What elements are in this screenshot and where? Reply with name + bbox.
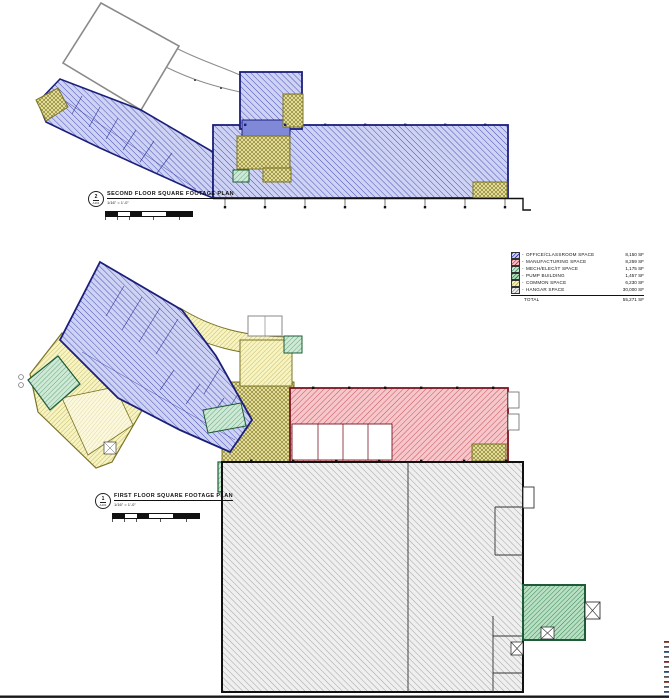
clipped-right-content: [664, 641, 669, 693]
legend-row: -COMMON SPACE6,230 SF: [511, 280, 644, 287]
area-legend: -OFFICE/CLASSROOM SPACE8,150 SF-MANUFACT…: [511, 252, 644, 304]
west-wing-door: [104, 442, 116, 454]
legend-label: PUMP BUILDING: [526, 274, 616, 279]
west-edge-symbols: [19, 375, 24, 388]
scale-bar-ticks: [112, 519, 198, 522]
curved-canopy-line: [178, 49, 240, 75]
column-ticks-bottom: [224, 198, 506, 208]
second-floor-detail-bubble: 2 A101: [88, 191, 104, 207]
sheet-reference: A101: [92, 201, 99, 205]
first-floor-detail-bubble: 1 A101: [95, 493, 111, 509]
legend-row: -MANUFACTURING SPACE8,259 SF: [511, 259, 644, 266]
legend-value: 30,000 SF: [616, 288, 644, 293]
hangar-area: [222, 462, 523, 692]
legend-value: 8,150 SF: [616, 253, 644, 258]
drawing-sheet: { "titles": { "second_floor": { "bubble_…: [0, 0, 669, 700]
grid-line-bottom: [213, 199, 531, 211]
legend-total-value: 55,271 SF: [616, 298, 644, 303]
legend-row: -OFFICE/CLASSROOM SPACE8,150 SF: [511, 252, 644, 259]
second-floor-plan-title: SECOND FLOOR SQUARE FOOTAGE PLAN: [107, 191, 234, 199]
legend-total-row: TOTAL 55,271 SF: [511, 295, 644, 304]
legend-value: 6,230 SF: [616, 281, 644, 286]
hangar-east-door-box: [523, 487, 534, 508]
first-floor-plan: [19, 262, 600, 692]
legend-swatch-icon: [511, 259, 520, 266]
first-floor-plan-title: FIRST FLOOR SQUARE FOOTAGE PLAN: [114, 493, 233, 501]
hangar-east-door: [511, 642, 523, 655]
floor-plans-drawing: [0, 0, 669, 700]
pump-building-inner-door: [541, 627, 554, 639]
mech-room-corridor-end: [284, 336, 302, 353]
first-floor-titleblock: 1 A101 FIRST FLOOR SQUARE FOOTAGE PLAN 1…: [95, 493, 233, 522]
second-floor-common-core: [237, 136, 290, 169]
manufacturing-east-doors: [508, 392, 519, 430]
legend-swatch-icon: [511, 273, 520, 280]
legend-value: 8,259 SF: [616, 260, 644, 265]
legend-swatch-icon: [511, 280, 520, 287]
second-floor-common-east: [473, 182, 507, 198]
legend-swatch-icon: [511, 266, 520, 273]
legend-total-label: TOTAL: [524, 298, 616, 303]
detail-number: 1: [100, 496, 107, 503]
legend-row: -HANGAR SPACE30,000 SF: [511, 287, 644, 294]
legend-row: -PUMP BUILDING1,457 SF: [511, 273, 644, 280]
second-floor-titleblock: 2 A101 SECOND FLOOR SQUARE FOOTAGE PLAN …: [88, 191, 234, 220]
legend-label: HANGAR SPACE: [526, 288, 616, 293]
second-floor-common-core-lower: [263, 168, 291, 182]
sheet-bottom-border: [0, 696, 669, 698]
common-room-at-manufacturing: [472, 444, 506, 461]
first-floor-plan-scale: 1/16" = 1'-0": [114, 502, 233, 507]
legend-label: MECH/ELEC/IT SPACE: [526, 267, 616, 272]
legend-swatch-icon: [511, 287, 520, 294]
pump-building-door: [585, 602, 600, 619]
legend-label: COMMON SPACE: [526, 281, 616, 286]
detail-number: 2: [93, 194, 100, 201]
legend-label: OFFICE/CLASSROOM SPACE: [526, 253, 616, 258]
legend-value: 1,457 SF: [616, 274, 644, 279]
vestibule: [248, 316, 282, 336]
second-floor-plan-scale: 1/16" = 1'-0": [107, 200, 234, 205]
second-floor-plan: [36, 3, 531, 210]
sheet-reference: A101: [99, 503, 106, 507]
manufacturing-rooms: [292, 424, 392, 460]
legend-label: MANUFACTURING SPACE: [526, 260, 616, 265]
legend-value: 1,175 SF: [616, 267, 644, 272]
legend-rows: -OFFICE/CLASSROOM SPACE8,150 SF-MANUFACT…: [511, 252, 644, 294]
legend-swatch-icon: [511, 252, 520, 259]
second-floor-mech-room: [233, 170, 249, 182]
legend-row: -MECH/ELEC/IT SPACE1,175 SF: [511, 266, 644, 273]
scale-bar-ticks: [105, 217, 191, 220]
second-floor-common-upper: [283, 94, 303, 127]
